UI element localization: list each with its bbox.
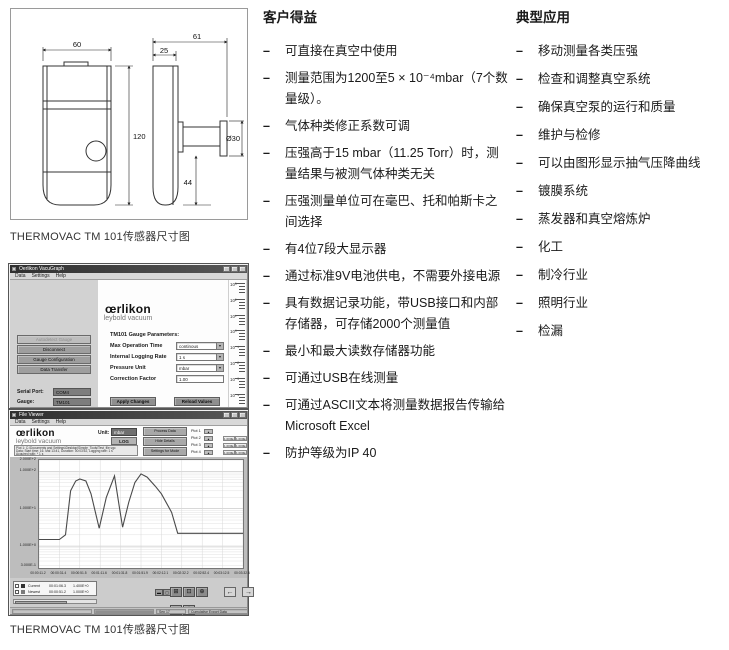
- legend-name: Current: [28, 584, 40, 588]
- list-item-text: 维护与检修: [538, 128, 601, 142]
- list-item: –可直接在真空中使用: [263, 41, 509, 62]
- plot-row: Plot 1▲: [191, 428, 221, 435]
- list-item-text: 可通过USB在线测量: [285, 371, 398, 385]
- bullet-dash: –: [263, 443, 270, 464]
- list-item-text: 气体种类修正系数可调: [285, 119, 410, 133]
- menu-item-settings[interactable]: Settings: [29, 419, 53, 426]
- bullet-dash: –: [516, 181, 523, 202]
- tick-mark: [235, 283, 245, 284]
- x-axis-label: 00:03:32.6: [232, 571, 252, 575]
- legend-time: 00:00:51.2: [49, 590, 66, 594]
- tick-mark: [239, 308, 245, 309]
- param-select[interactable]: mbar▼: [176, 364, 224, 372]
- bullet-dash: –: [263, 395, 270, 416]
- plot-row: Plot 3▲: [191, 442, 221, 449]
- plot-range-row: 1.000E+31.000E-3: [223, 442, 249, 449]
- log-scale-button[interactable]: LOG: [111, 437, 137, 445]
- vacugraph-window: Oerlikon VacuGraph DataSettingsHelp œrli…: [8, 263, 249, 409]
- x-axis-label: 00:01:11.6: [89, 571, 109, 575]
- y-axis-label: 1.000E+2: [10, 468, 36, 472]
- app-icon: [12, 413, 16, 417]
- gauge-parameters-form: Max Operation Timecontinous▼Internal Log…: [110, 342, 228, 386]
- pressure-bargraph-scale: 10³10²10¹10⁰10⁻¹10⁻²10⁻³10⁻⁴: [228, 280, 246, 407]
- maximize-icon[interactable]: [231, 412, 238, 418]
- viewer-button[interactable]: Hide Details: [143, 437, 187, 446]
- list-item-text: 有4位7段大显示器: [285, 242, 386, 256]
- tick-mark: [239, 286, 245, 287]
- status-field-label: Serial Port:: [17, 389, 44, 395]
- bargraph-scale-group: 10¹: [229, 314, 246, 330]
- status-segment: [94, 609, 154, 614]
- dim-flange-offset: 44: [184, 178, 192, 187]
- list-item: –可通过USB在线测量: [263, 368, 509, 389]
- zoom-tool-button[interactable]: ⊡: [183, 587, 195, 597]
- bullet-dash: –: [516, 125, 523, 146]
- status-field-value: COM4: [53, 388, 91, 396]
- plot-range-row: 1.000E+31.000E-3: [223, 435, 249, 442]
- list-item-text: 压强高于15 mbar（11.25 Torr）时，测量结果与被测气体种类无关: [285, 146, 499, 181]
- mini-button[interactable]: ▬: [155, 589, 163, 596]
- dropdown-arrow-icon[interactable]: ▼: [216, 354, 223, 360]
- list-item: –镀膜系统: [516, 181, 724, 202]
- pressure-chart-plot-area: [38, 459, 244, 569]
- tick-mark: [239, 324, 245, 325]
- file-viewer-window: File Viewer DataSettingsHelp œrlikon ley…: [8, 409, 249, 616]
- bargraph-scale-group: 10⁻¹: [229, 345, 246, 361]
- list-item-text: 最小和最大读数存储器功能: [285, 344, 435, 358]
- list-item-text: 压强测量单位可在毫巴、托和帕斯卡之间选择: [285, 194, 498, 229]
- tick-mark: [239, 368, 245, 369]
- param-label: Correction Factor: [110, 376, 156, 382]
- zoom-tool-button[interactable]: ⊕: [196, 587, 208, 597]
- tick-mark: [239, 365, 245, 366]
- bullet-dash: –: [263, 341, 270, 362]
- tick-mark: [239, 336, 245, 337]
- dim-height: 120: [133, 132, 146, 141]
- bullet-dash: –: [263, 293, 270, 314]
- y-axis-label: 1.000E+0: [10, 543, 36, 547]
- vacugraph-titlebar[interactable]: Oerlikon VacuGraph: [10, 265, 247, 273]
- pan-left-button[interactable]: ←: [224, 587, 236, 597]
- list-item-text: 制冷行业: [538, 268, 588, 282]
- list-item: –具有数据记录功能，带USB接口和内部存储器，可存储2000个测量值: [263, 293, 509, 335]
- menu-item-help[interactable]: Help: [53, 419, 69, 426]
- dim-depth-total: 61: [193, 32, 201, 41]
- plot-range-row: 1.000E+31.000E-3: [223, 449, 249, 456]
- connection-buttons: Autodetect GaugeDisconnectGauge Configur…: [17, 335, 91, 375]
- figure-caption-drawing: THERMOVAC TM 101传感器尺寸图: [10, 228, 190, 244]
- tick-mark: [239, 400, 245, 401]
- plot-zoom-up-button[interactable]: ▲: [204, 443, 213, 449]
- param-label: Internal Logging Rate: [110, 354, 167, 360]
- list-item: –照明行业: [516, 293, 724, 314]
- x-axis-label: 00:02:12.1: [150, 571, 170, 575]
- list-item-text: 蒸发器和真空熔炼炉: [538, 212, 651, 226]
- tick-mark: [239, 355, 245, 356]
- plot-zoom-up-button[interactable]: ▲: [204, 450, 213, 456]
- scrollbar-thumb[interactable]: [15, 601, 67, 604]
- viewer-action-buttons: Process DataHide DetailsSettings for Mod…: [143, 427, 187, 457]
- dim-width: 60: [73, 40, 81, 49]
- tick-mark: [239, 318, 245, 319]
- x-axis-label: 00:00:11.2: [28, 571, 48, 575]
- sidebar-button[interactable]: Autodetect Gauge: [17, 335, 91, 344]
- tick-mark: [235, 330, 245, 331]
- close-icon[interactable]: [239, 266, 246, 272]
- legend-swatch: [21, 590, 25, 594]
- list-item: –移动测量各类压强: [516, 41, 724, 62]
- vacugraph-window-title: Oerlikon VacuGraph: [19, 266, 64, 272]
- bargraph-scale-group: 10²: [229, 298, 246, 314]
- app-icon: [12, 267, 16, 271]
- param-row: Pressure Unitmbar▼: [110, 364, 228, 375]
- param-row: Correction Factor1.00: [110, 375, 228, 386]
- dim-depth-front: 25: [160, 46, 168, 55]
- list-item: –最小和最大读数存储器功能: [263, 341, 509, 362]
- file-viewer-titlebar[interactable]: File Viewer: [10, 411, 247, 419]
- status-segment-date: Sep 17: [156, 609, 186, 614]
- scale-ticks: [235, 378, 245, 390]
- benefits-title: 客户得益: [263, 6, 509, 26]
- bullet-dash: –: [263, 143, 270, 164]
- x-axis-label: 00:01:31.8: [110, 571, 130, 575]
- logo-sub-text: leybold vacuum: [16, 438, 61, 445]
- tick-mark: [235, 346, 245, 347]
- unit-label: Unit:: [98, 430, 109, 436]
- maximize-icon[interactable]: [231, 266, 238, 272]
- param-select[interactable]: 1 s▼: [176, 353, 224, 361]
- scale-ticks: [235, 394, 245, 406]
- scale-ticks: [235, 362, 245, 374]
- x-axis-label: 00:02:32.2: [171, 571, 191, 575]
- legend-name: Newest: [28, 590, 40, 594]
- dim-flange-diameter: Ø30: [226, 134, 240, 143]
- applications-title: 典型应用: [516, 6, 724, 26]
- minimize-icon[interactable]: [223, 412, 230, 418]
- list-item: –气体种类修正系数可调: [263, 116, 509, 137]
- tick-mark: [239, 397, 245, 398]
- file-viewer-header: œrlikon leybold vacuum Unit: mbar LOG Pl…: [10, 426, 247, 457]
- list-item-text: 化工: [538, 240, 563, 254]
- figure-caption-software: THERMOVAC TM 101传感器尺寸图: [10, 621, 190, 637]
- list-item: –检查和调整真空系统: [516, 69, 724, 90]
- tick-mark: [239, 333, 245, 334]
- x-axis-label: 00:00:31.4: [48, 571, 68, 575]
- plot-row: Plot 4▲: [191, 449, 221, 456]
- gauge-parameters-title: TM101 Gauge Parameters:: [110, 332, 179, 338]
- list-item-text: 通过标准9V电池供电，不需要外接电源: [285, 269, 500, 283]
- tick-mark: [239, 403, 245, 404]
- front-view: [43, 62, 111, 205]
- bullet-dash: –: [516, 209, 523, 230]
- list-item: –制冷行业: [516, 265, 724, 286]
- status-segment: [12, 609, 92, 614]
- plot-label: Plot 1: [191, 429, 201, 433]
- tick-mark: [239, 384, 245, 385]
- tick-mark: [235, 394, 245, 395]
- connection-status: Serial Port:COM4Gauge:TM101: [17, 388, 95, 408]
- bullet-dash: –: [516, 41, 523, 62]
- param-label: Max Operation Time: [110, 343, 162, 349]
- tick-mark: [239, 305, 245, 306]
- legend-value: 1.000E+0: [73, 590, 89, 594]
- plot-zoom-up-button[interactable]: ▲: [204, 429, 213, 435]
- x-axis-label: 00:01:51.9: [130, 571, 150, 575]
- y-axis-label: 1.000E+1: [10, 506, 36, 510]
- list-item-text: 移动测量各类压强: [538, 44, 638, 58]
- bullet-dash: –: [516, 265, 523, 286]
- bullet-dash: –: [516, 97, 523, 118]
- oerlikon-logo: œrlikon leybold vacuum: [104, 302, 153, 322]
- scale-ticks: [235, 330, 245, 342]
- bullet-dash: –: [263, 68, 270, 89]
- tick-mark: [239, 339, 245, 340]
- close-icon[interactable]: [239, 412, 246, 418]
- param-select[interactable]: continous▼: [176, 342, 224, 350]
- dropdown-arrow-icon[interactable]: ▼: [216, 343, 223, 349]
- status-field-label: Gauge:: [17, 399, 34, 405]
- file-info-line: Acquired with: * 1 s: [16, 453, 136, 456]
- chart-zone: 2.000E+21.000E+21.000E+11.000E+03.000E-1…: [10, 457, 247, 578]
- bargraph-scale-group: 10⁻³: [229, 377, 246, 393]
- zoom-tool-button[interactable]: ⊞: [170, 587, 182, 597]
- list-item-text: 具有数据记录功能，带USB接口和内部存储器，可存储2000个测量值: [285, 296, 498, 331]
- file-viewer-window-title: File Viewer: [19, 412, 44, 418]
- mini-toggle-buttons: ▬▢: [155, 581, 171, 599]
- tick-mark: [239, 381, 245, 382]
- bullet-dash: –: [263, 191, 270, 212]
- pan-right-button[interactable]: →: [242, 587, 254, 597]
- scale-ticks: [235, 299, 245, 311]
- list-item: –检漏: [516, 321, 724, 342]
- status-segment-info: Cumulative Export Data: [188, 609, 248, 614]
- tick-mark: [239, 352, 245, 353]
- list-item-text: 可通过ASCII文本将测量数据报告传输给Microsoft Excel: [285, 398, 505, 433]
- logo-sub-text: leybold vacuum: [104, 315, 153, 322]
- vacugraph-content: œrlikon leybold vacuum TM101 Gauge Param…: [10, 280, 247, 407]
- list-item: –通过标准9V电池供电，不需要外接电源: [263, 266, 509, 287]
- bullet-dash: –: [516, 237, 523, 258]
- horizontal-scrollbar[interactable]: [13, 599, 97, 604]
- status-field: Serial Port:COM4: [17, 388, 95, 397]
- legend-value: 1.400E+0: [73, 584, 89, 588]
- list-item: –维护与检修: [516, 125, 724, 146]
- scale-ticks: [235, 315, 245, 327]
- dimension-drawing-svg: 60 61 25 120 44 Ø30: [11, 9, 247, 219]
- status-field-value: TM101: [53, 398, 91, 406]
- sidebar-button[interactable]: Data Transfer: [17, 365, 91, 374]
- param-row: Max Operation Timecontinous▼: [110, 342, 228, 353]
- bargraph-scale-group: 10⁰: [229, 329, 246, 345]
- menu-item-help[interactable]: Help: [53, 273, 69, 280]
- list-item: –确保真空泵的运行和质量: [516, 97, 724, 118]
- plot-range-row: 1.000E+31.000E-3: [223, 428, 249, 435]
- y-axis-label: 2.000E+2: [10, 457, 36, 461]
- sidebar-button[interactable]: Gauge Configuration: [17, 355, 91, 364]
- file-viewer-menubar: DataSettingsHelp: [10, 419, 247, 426]
- list-item: –可以由图形显示抽气压降曲线: [516, 153, 724, 174]
- y-axis-label: 3.000E-1: [10, 563, 36, 567]
- legend-checkbox[interactable]: [15, 590, 19, 594]
- bullet-dash: –: [516, 321, 523, 342]
- tick-mark: [235, 378, 245, 379]
- plot-label: Plot 4: [191, 450, 201, 454]
- tick-mark: [239, 321, 245, 322]
- list-item: –化工: [516, 237, 724, 258]
- list-item-text: 检漏: [538, 324, 563, 338]
- legend-row: Newest00:00:51.21.000E+0: [15, 589, 95, 595]
- list-item-text: 检查和调整真空系统: [538, 72, 651, 86]
- customer-benefits-column: 客户得益 –可直接在真空中使用–测量范围为1200至5 × 10⁻⁴mbar（7…: [263, 6, 509, 470]
- list-item-text: 可直接在真空中使用: [285, 44, 398, 58]
- list-item: –防护等级为IP 40: [263, 443, 509, 464]
- menu-item-data[interactable]: Data: [12, 273, 29, 280]
- logo-brand-text: œrlikon: [104, 302, 153, 316]
- bullet-dash: –: [263, 368, 270, 389]
- action-button[interactable]: Apply Changes: [110, 397, 156, 406]
- x-axis-label: 00:03:12.5: [212, 571, 232, 575]
- tick-mark: [239, 302, 245, 303]
- bullet-dash: –: [516, 293, 523, 314]
- param-input[interactable]: 1.00: [176, 375, 224, 383]
- bullet-dash: –: [263, 41, 270, 62]
- param-row: Internal Logging Rate1 s▼: [110, 353, 228, 364]
- minimize-icon[interactable]: [223, 266, 230, 272]
- tick-mark: [239, 349, 245, 350]
- list-item-text: 确保真空泵的运行和质量: [538, 100, 676, 114]
- status-field: Gauge:TM101: [17, 398, 95, 407]
- bullet-dash: –: [263, 266, 270, 287]
- list-item: –压强高于15 mbar（11.25 Torr）时，测量结果与被测气体种类无关: [263, 143, 509, 185]
- tick-mark: [239, 289, 245, 290]
- menu-item-data[interactable]: Data: [12, 419, 29, 426]
- list-item-text: 照明行业: [538, 296, 588, 310]
- status-bar: Sep 17 Cumulative Export Data: [10, 607, 247, 614]
- list-item: –可通过ASCII文本将测量数据报告传输给Microsoft Excel: [263, 395, 509, 437]
- bullet-dash: –: [516, 153, 523, 174]
- form-action-buttons: Apply ChangesReload Values: [110, 390, 228, 408]
- oerlikon-logo: œrlikon leybold vacuum: [16, 428, 61, 445]
- list-item: –有4位7段大显示器: [263, 239, 509, 260]
- plot-label: Plot 2: [191, 436, 201, 440]
- bullet-dash: –: [263, 239, 270, 260]
- scale-ticks: [235, 346, 245, 358]
- bargraph-scale-group: 10³: [229, 282, 246, 298]
- param-label: Pressure Unit: [110, 365, 146, 371]
- benefits-list: –可直接在真空中使用–测量范围为1200至5 × 10⁻⁴mbar（7个数量级）…: [263, 41, 509, 464]
- unit-select[interactable]: mbar: [111, 428, 137, 436]
- list-item-text: 镀膜系统: [538, 184, 588, 198]
- dimension-drawing-figure: 60 61 25 120 44 Ø30: [10, 8, 248, 220]
- applications-list: –移动测量各类压强–检查和调整真空系统–确保真空泵的运行和质量–维护与检修–可以…: [516, 41, 724, 342]
- list-item-text: 测量范围为1200至5 × 10⁻⁴mbar（7个数量级）。: [285, 71, 508, 106]
- legend-swatch: [21, 584, 25, 588]
- sidebar-button[interactable]: Disconnect: [17, 345, 91, 354]
- plot-range-values: 1.000E+31.000E-31.000E+31.000E-31.000E+3…: [223, 428, 249, 456]
- plot-row: Plot 2▲: [191, 435, 221, 442]
- menu-item-settings[interactable]: Settings: [29, 273, 53, 280]
- bargraph-scale-group: 10⁻²: [229, 361, 246, 377]
- scale-ticks: [235, 283, 245, 295]
- bullet-dash: –: [263, 116, 270, 137]
- tick-mark: [235, 315, 245, 316]
- list-item: –测量范围为1200至5 × 10⁻⁴mbar（7个数量级）。: [263, 68, 509, 110]
- typical-applications-column: 典型应用 –移动测量各类压强–检查和调整真空系统–确保真空泵的运行和质量–维护与…: [516, 6, 724, 349]
- file-info-box[interactable]: Plot 1: C:\Documents and Settings\Deskto…: [14, 445, 138, 456]
- tick-mark: [235, 299, 245, 300]
- list-item-text: 防护等级为IP 40: [285, 446, 376, 460]
- list-item-text: 可以由图形显示抽气压降曲线: [538, 156, 701, 170]
- tick-mark: [235, 362, 245, 363]
- chart-legend: Current00:01:06.31.400E+0Newest00:00:51.…: [13, 581, 97, 596]
- tick-mark: [239, 387, 245, 388]
- vacugraph-menubar: DataSettingsHelp: [10, 273, 247, 280]
- tick-mark: [239, 292, 245, 293]
- list-item: –蒸发器和真空熔炼炉: [516, 209, 724, 230]
- action-button[interactable]: Reload Values: [174, 397, 220, 406]
- x-axis-label: 00:02:52.4: [191, 571, 211, 575]
- bullet-dash: –: [516, 69, 523, 90]
- chart-bottom-controls: Current00:01:06.31.400E+0Newest00:00:51.…: [10, 578, 247, 609]
- tick-mark: [239, 371, 245, 372]
- plot-selector-list: Plot 1▲Plot 2▲Plot 3▲Plot 4▲: [191, 428, 221, 456]
- legend-time: 00:01:06.3: [49, 584, 66, 588]
- pressure-curve-svg: [39, 460, 243, 568]
- dropdown-arrow-icon[interactable]: ▼: [216, 365, 223, 371]
- pan-buttons: ← →: [222, 581, 254, 599]
- x-axis-label: 00:00:51.5: [69, 571, 89, 575]
- bargraph-scale-group: 10⁻⁴: [229, 393, 246, 409]
- plot-label: Plot 3: [191, 443, 201, 447]
- viewer-button[interactable]: Process Data: [143, 427, 187, 436]
- legend-checkbox[interactable]: [15, 584, 19, 588]
- viewer-button[interactable]: Settings for Mode: [143, 447, 187, 456]
- plot-zoom-up-button[interactable]: ▲: [204, 436, 213, 442]
- list-item: –压强测量单位可在毫巴、托和帕斯卡之间选择: [263, 191, 509, 233]
